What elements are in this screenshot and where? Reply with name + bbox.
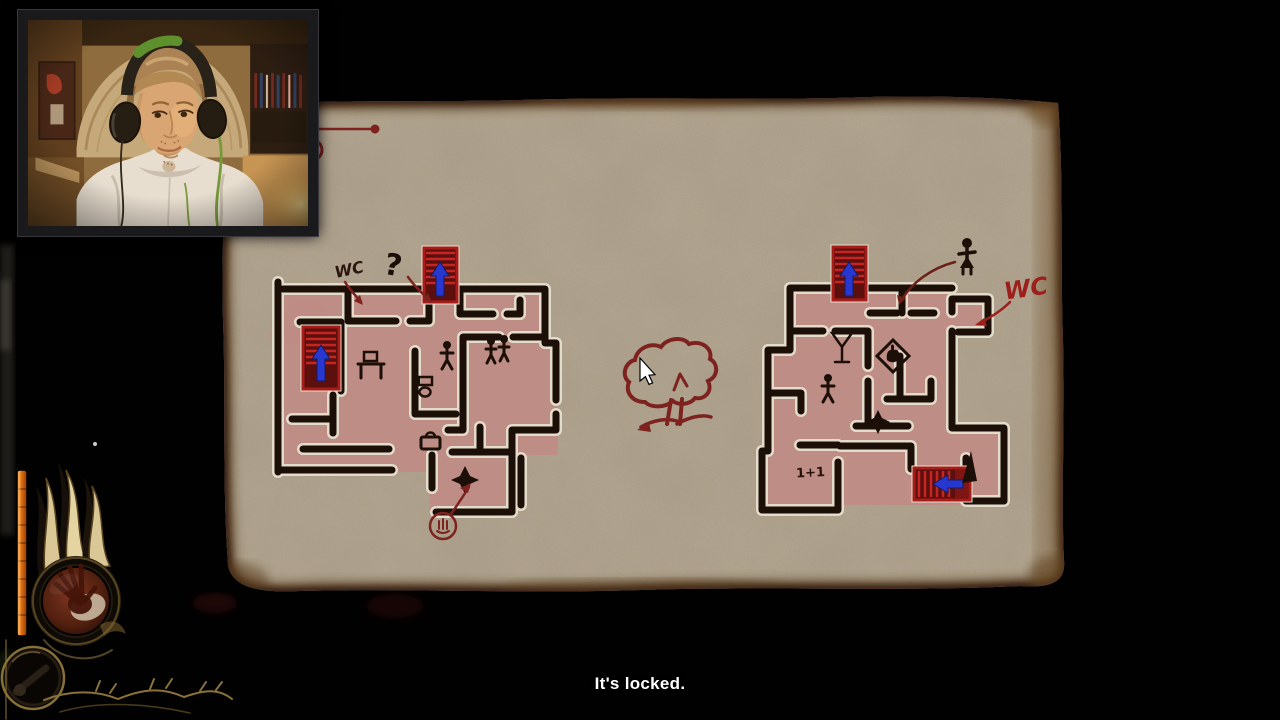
stairs-up-icon (833, 247, 866, 300)
parchment-map[interactable]: WC ? (193, 85, 1088, 618)
power-meter (17, 470, 27, 636)
unit-label: 1+1 (796, 465, 826, 481)
subtitle: It's locked. (0, 674, 1280, 694)
game-screen: WC ? (0, 0, 1280, 720)
stairs-left-icon (914, 468, 970, 500)
webcam-overlay (18, 10, 318, 236)
stairs-up-icon (424, 248, 457, 302)
stairs-up-icon (303, 327, 339, 389)
streamer-webcam (28, 20, 308, 226)
left-edge-glow (0, 245, 16, 686)
